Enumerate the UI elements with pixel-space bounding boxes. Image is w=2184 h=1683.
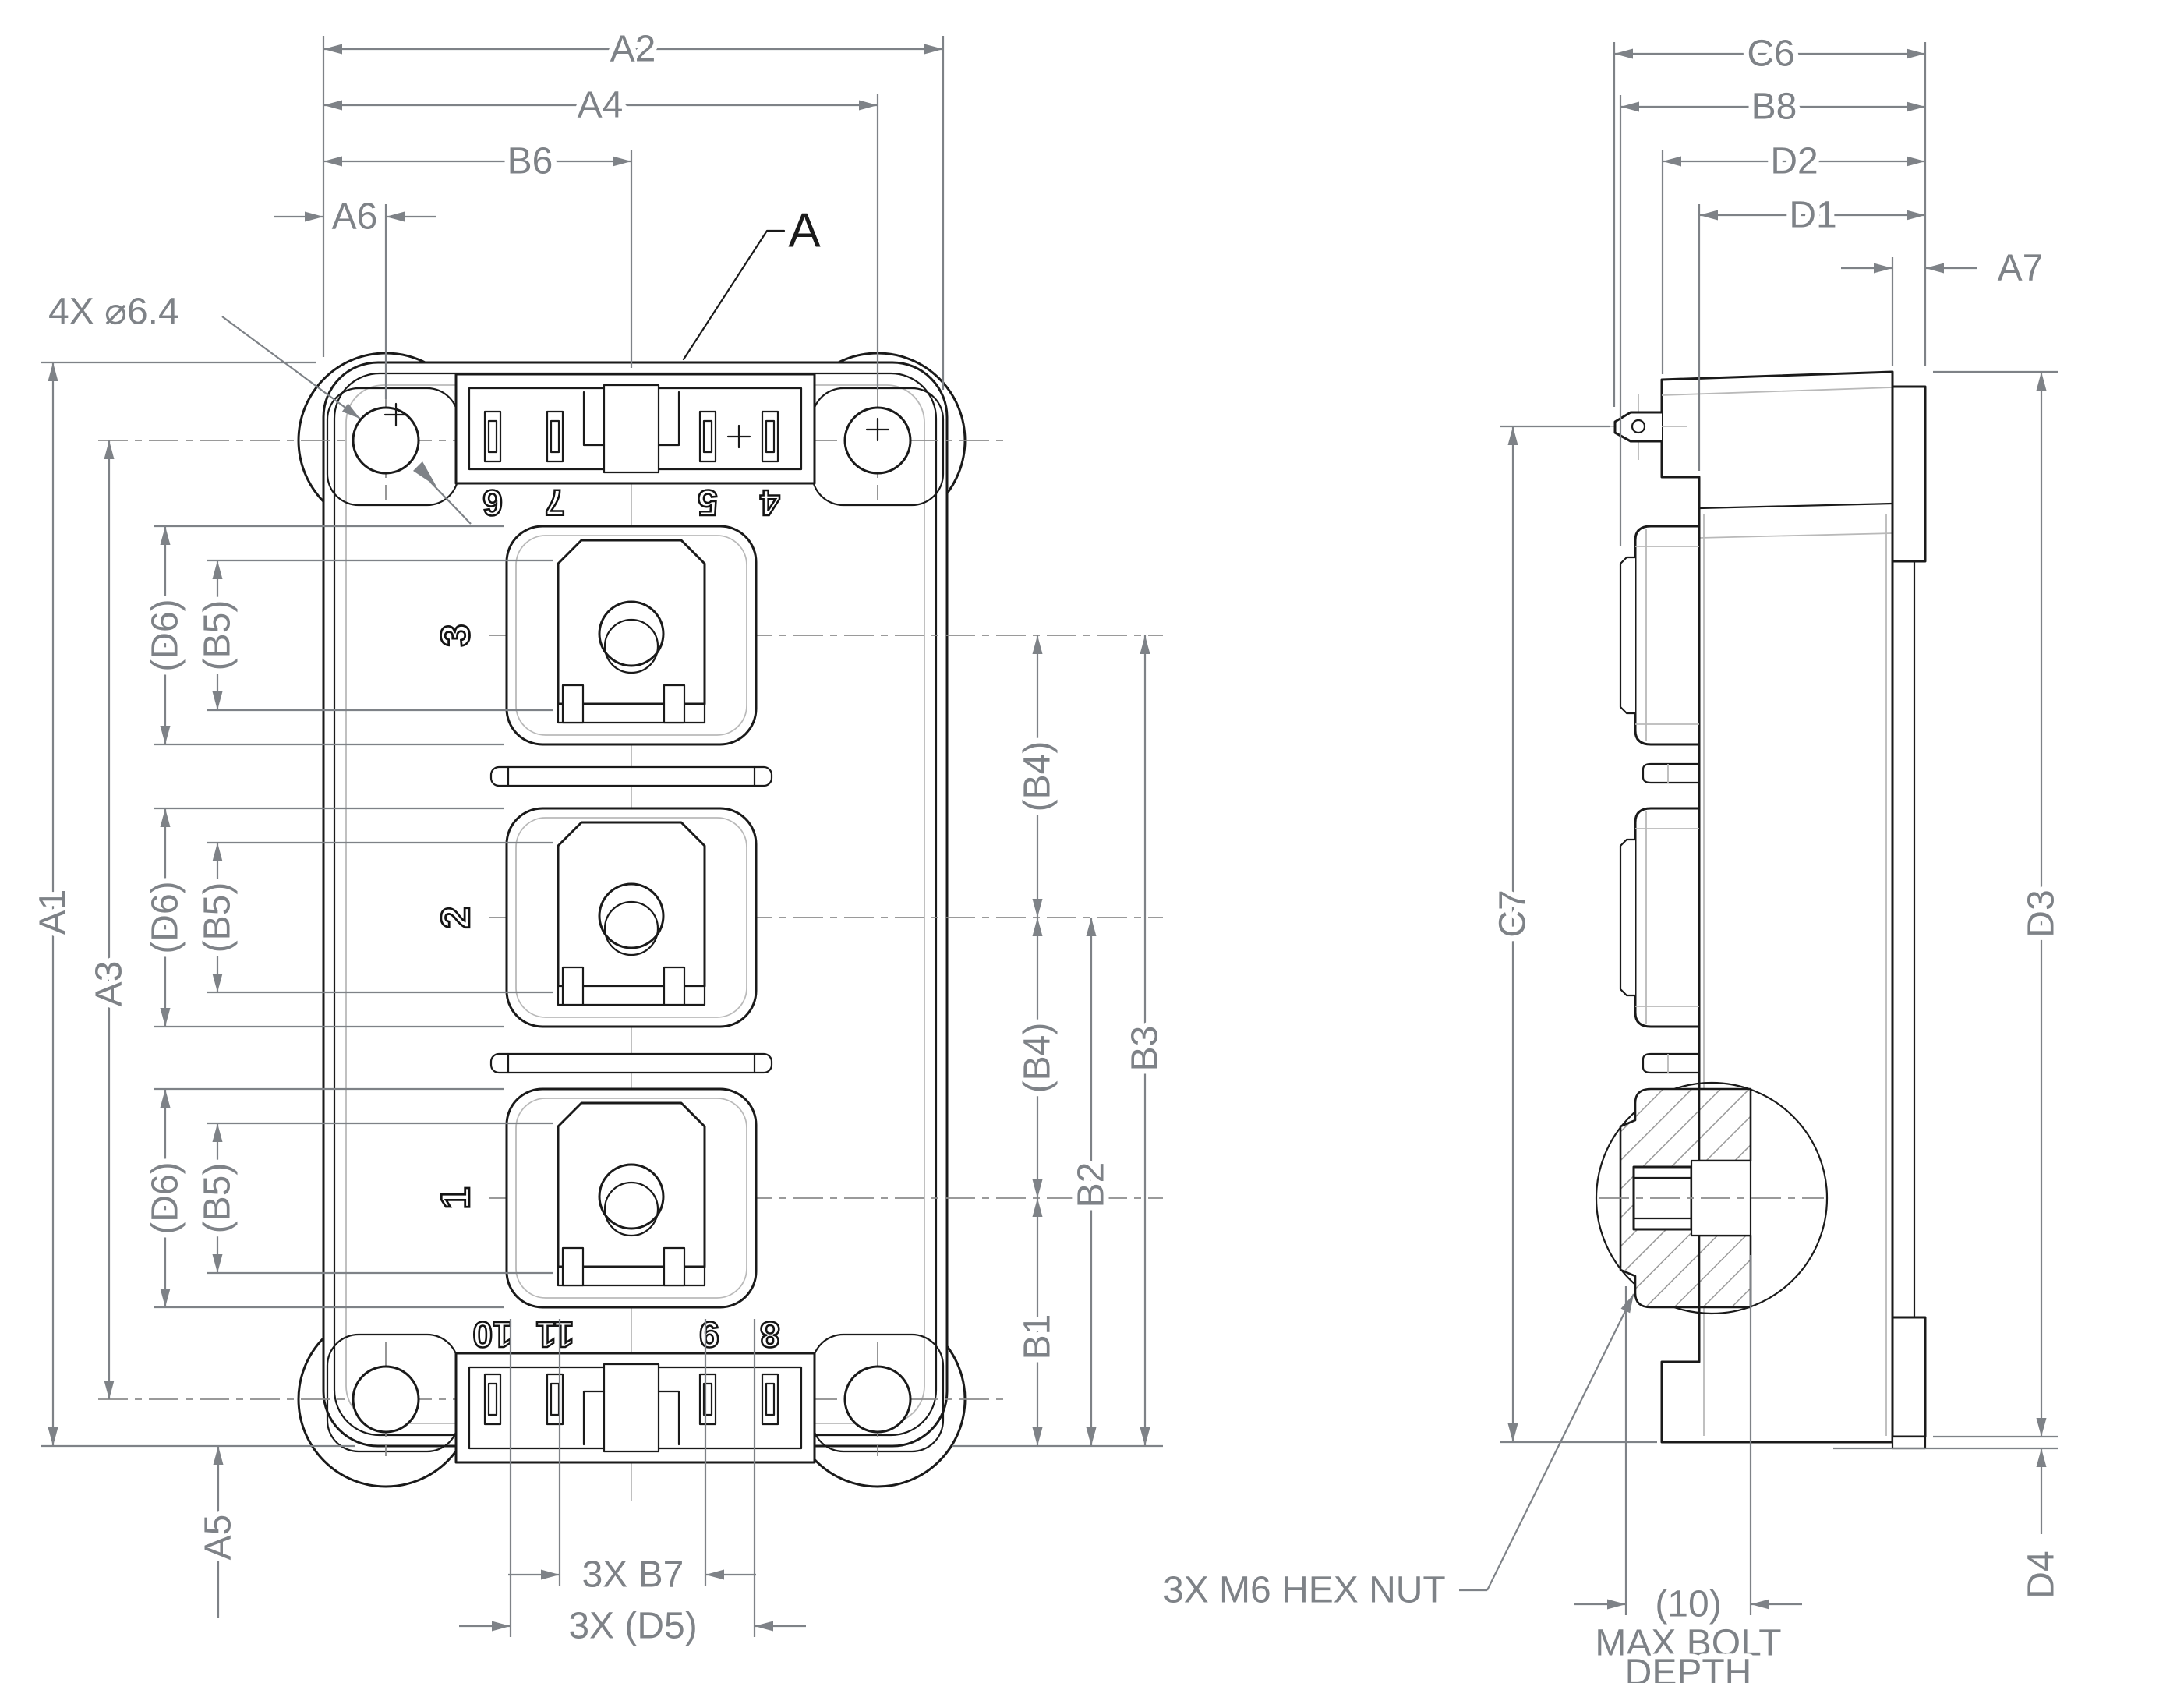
section-label: A (788, 204, 821, 258)
dim-label-b6: B6 (507, 141, 553, 182)
note-depth: DEPTH (1625, 1653, 1752, 1683)
baseplate (1892, 387, 1925, 1448)
dim-label-b7: 3X B7 (582, 1554, 684, 1596)
pad-number-3: 3 (433, 624, 479, 647)
dim-label-a7: A7 (1998, 248, 2044, 289)
dim-label-b5-pad2: (B5) (197, 882, 239, 953)
pad-tower-middle (1620, 808, 1699, 1027)
terminal-number-7: 7 (545, 483, 565, 523)
dim-label-c6: C6 (1747, 34, 1794, 75)
dim-label-d6-pad3: (D6) (145, 599, 186, 671)
dim-label-d1: D1 (1789, 195, 1836, 236)
side-view: C6 B8 D2 D1 A7 C7 D3 D4 (1163, 34, 2062, 1683)
dim-label-b8: B8 (1751, 87, 1797, 128)
terminal-number-5: 5 (698, 483, 718, 523)
dim-label-a5: A5 (198, 1515, 239, 1561)
terminal-number-9: 9 (699, 1314, 719, 1355)
drawing-canvas: 6 7 5 4 10 11 9 8 (0, 0, 2184, 1683)
dim-label-c7: C7 (1493, 889, 1534, 937)
dim-label-b4-upper: (B4) (1017, 741, 1058, 812)
dim-label-b5-pad1: (B5) (197, 1163, 239, 1234)
note-hex-nut: 3X M6 HEX NUT (1163, 1570, 1446, 1611)
clamp-tab-top (1892, 387, 1925, 561)
baseplate-foot (1892, 1437, 1925, 1448)
dim-label-a3: A3 (89, 961, 130, 1007)
terminal-number-10: 10 (472, 1314, 512, 1355)
hole-bottom-left (353, 1367, 419, 1432)
hex-nut-callout: 3X M6 HEX NUT (1163, 1294, 1634, 1611)
section-callout: A (684, 204, 821, 360)
terminal-number-8: 8 (760, 1314, 780, 1355)
top-view: 6 7 5 4 10 11 9 8 (33, 29, 1166, 1647)
dim-label-bolt-depth: (10) (1655, 1584, 1721, 1625)
pad-number-2: 2 (433, 907, 479, 929)
dim-label-a6: A6 (332, 196, 378, 238)
dim-label-d4: D4 (2021, 1550, 2062, 1598)
dim-label-b1: B1 (1017, 1314, 1058, 1360)
hole-top-left (353, 408, 419, 473)
dim-label-b4-lower: (B4) (1017, 1023, 1058, 1094)
terminal-number-4: 4 (760, 483, 780, 523)
hole-callout-label: 4X ⌀6.4 (48, 292, 179, 333)
terminal-number-6: 6 (482, 483, 503, 523)
dim-label-a4: A4 (578, 85, 624, 126)
pad-number-1: 1 (433, 1187, 479, 1210)
dim-label-b3: B3 (1125, 1026, 1166, 1072)
dim-label-b5-pad3: (B5) (197, 600, 239, 671)
pad-tower-upper (1620, 526, 1699, 744)
dim-label-d6-pad2: (D6) (145, 881, 186, 953)
dim-label-d6-pad1: (D6) (145, 1161, 186, 1234)
dimensions-side-view: C6 B8 D2 D1 A7 C7 D3 D4 (1163, 34, 2062, 1683)
dim-label-a2: A2 (610, 29, 656, 70)
terminal-number-11: 11 (536, 1314, 574, 1355)
dim-label-d2: D2 (1770, 141, 1818, 182)
dim-label-d3: D3 (2021, 889, 2062, 937)
dim-label-b2: B2 (1071, 1162, 1112, 1208)
dim-label-a1: A1 (33, 889, 74, 935)
hole-bottom-right (845, 1367, 910, 1432)
clamp-tab-bottom (1892, 1317, 1925, 1437)
dim-label-d5: 3X (D5) (568, 1606, 697, 1647)
drawing-page: 6 7 5 4 10 11 9 8 (0, 0, 2184, 1683)
